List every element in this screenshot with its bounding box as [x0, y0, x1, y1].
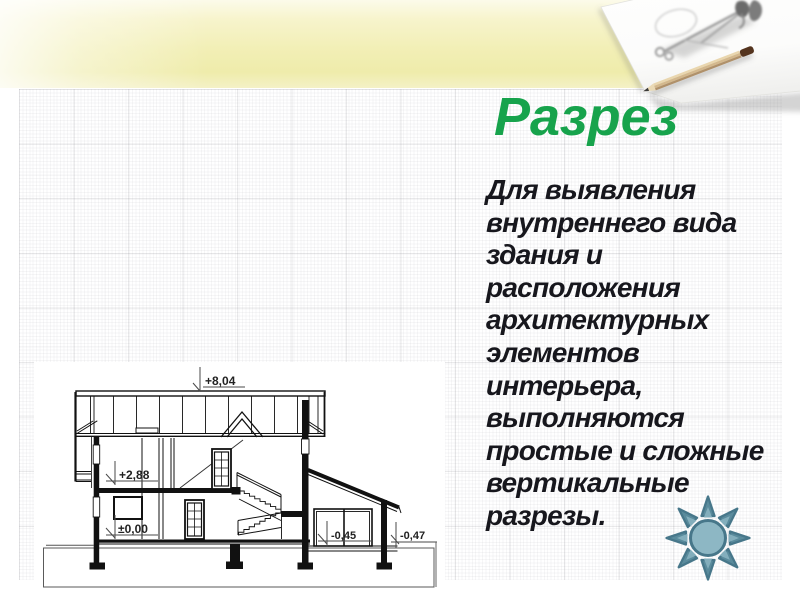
- svg-text:+8,04: +8,04: [205, 374, 236, 388]
- svg-text:-0,45: -0,45: [331, 530, 356, 542]
- svg-text:±0,00: ±0,00: [118, 522, 148, 536]
- svg-text:-0,47: -0,47: [400, 530, 425, 542]
- svg-text:+2,88: +2,88: [119, 468, 150, 482]
